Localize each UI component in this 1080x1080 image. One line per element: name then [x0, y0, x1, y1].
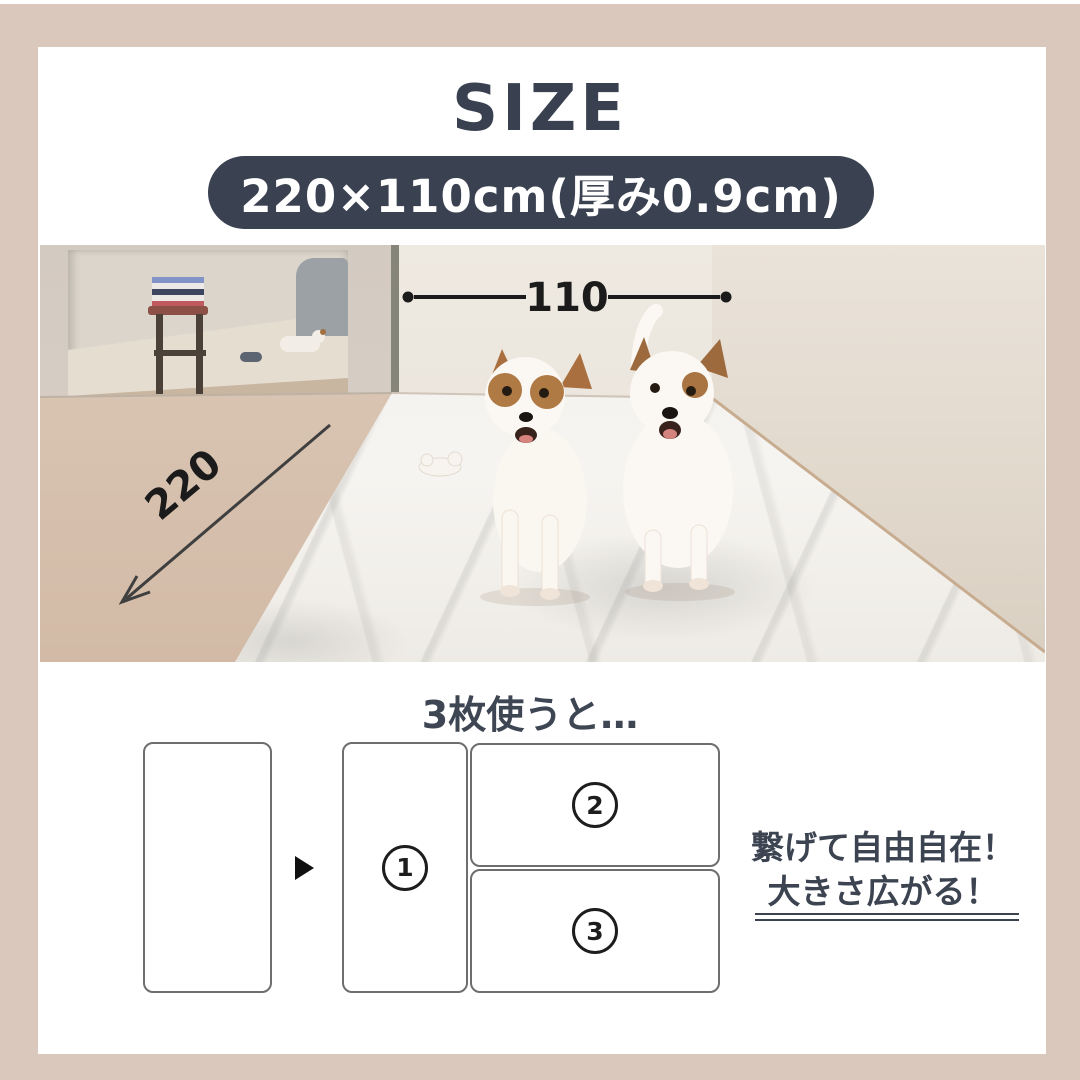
mat-2-diagram: 2	[470, 743, 720, 867]
product-size-infographic: SIZE 220×110cm(厚み0.9cm)	[0, 0, 1080, 1080]
combo-heading: 3枚使うと…	[422, 684, 638, 739]
arrow-right-icon	[295, 856, 314, 880]
mat-right-edge	[712, 398, 1045, 652]
circled-number-2: 2	[572, 782, 618, 828]
width-dimension-line: 110	[403, 275, 732, 321]
dog-right	[623, 311, 735, 601]
product-photo: 110 220	[40, 245, 1045, 662]
circled-number-1: 1	[382, 845, 428, 891]
mat-1-diagram: 1	[342, 742, 468, 993]
single-mat-diagram	[143, 742, 272, 993]
length-dimension-arrow: 220	[122, 425, 330, 602]
note-line-1: 繋げて自由自在！	[751, 826, 1015, 870]
circled-number-3: 3	[572, 908, 618, 954]
length-label: 220	[137, 441, 231, 530]
page-title: SIZE	[0, 72, 1080, 146]
size-badge: 220×110cm(厚み0.9cm)	[208, 156, 874, 229]
dog-left	[480, 349, 592, 606]
width-label: 110	[525, 275, 609, 321]
photo-overlay: 110 220	[40, 245, 1045, 662]
note-underline	[755, 913, 1019, 921]
mat-3-diagram: 3	[470, 869, 720, 993]
wall-floor-line	[40, 393, 392, 397]
toy	[419, 452, 462, 476]
note-text: 繋げて自由自在！ 大きさ広がる！	[751, 826, 1015, 914]
note-line-2: 大きさ広がる！	[751, 870, 1015, 914]
